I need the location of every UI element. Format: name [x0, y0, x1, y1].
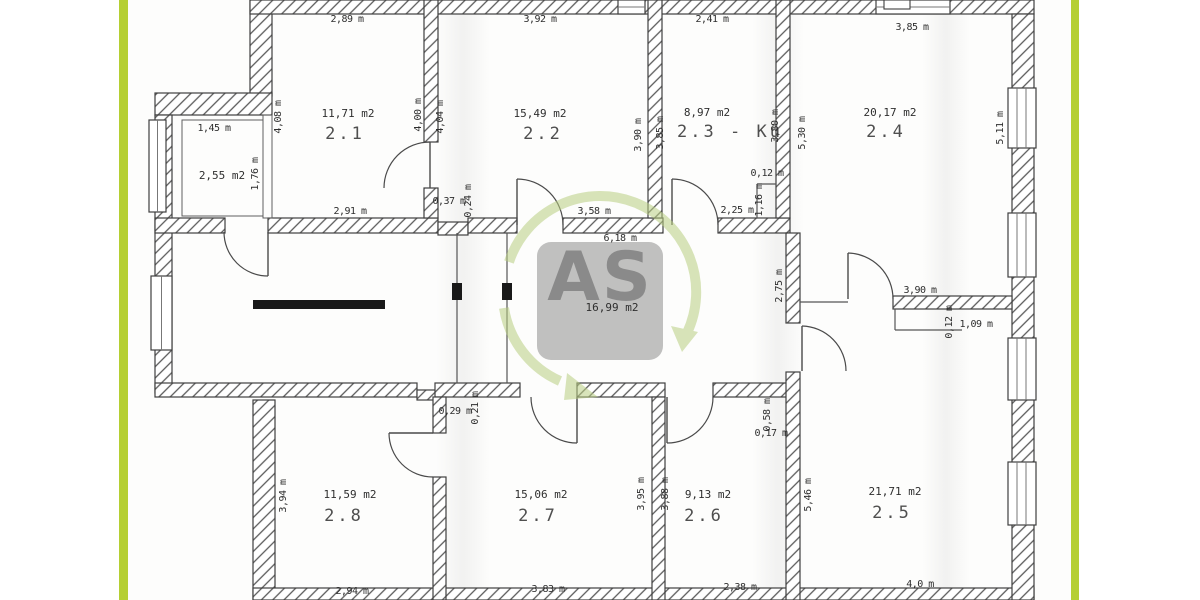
- dimension-label: 3,80 m: [770, 109, 781, 143]
- dimension-label: 3,85 m: [895, 22, 929, 33]
- window: [1008, 88, 1036, 148]
- room-area-label-room-2-2: 15,49 m2: [514, 107, 567, 120]
- dimension-label: 2,89 m: [330, 14, 364, 25]
- room-number-label-room-2-3: 2.3 - Kü: [677, 122, 783, 142]
- wall-segment: [155, 218, 225, 233]
- wall-segment: [253, 400, 275, 600]
- wall-segment: [563, 218, 663, 233]
- room-number-label-room-2-2: 2.2: [523, 124, 563, 144]
- dimension-label: 0,21 m: [470, 391, 481, 425]
- wall-segment: [718, 218, 790, 233]
- dimension-label: 0,37 m: [432, 196, 466, 207]
- dimension-label: 1,09 m: [959, 319, 993, 330]
- dimension-label: 4,08 m: [273, 100, 284, 134]
- wall-segment: [155, 383, 417, 397]
- room-area-label-room-2-6: 9,13 m2: [685, 488, 731, 501]
- chimney-stub: [884, 0, 910, 9]
- dimension-label: 1,16 m: [754, 183, 765, 217]
- room-area-label-room-2-4: 20,17 m2: [864, 106, 917, 119]
- wall-segment: [433, 477, 446, 600]
- dimension-label: 6,18 m: [603, 233, 637, 244]
- scanned-floor-plan-page: AS 2,55 m211,71 m22.115,49 m22.28,97 m22…: [0, 0, 1200, 600]
- room-area-label-room-2-8: 11,59 m2: [324, 488, 377, 501]
- dimension-label: 2,41 m: [695, 14, 729, 25]
- solid-wall-bar: [502, 283, 512, 300]
- room-area-label-room-2-5: 21,71 m2: [869, 485, 922, 498]
- wall-segment: [468, 218, 517, 233]
- dimension-label: 1,76 m: [250, 157, 261, 191]
- solid-wall-bar: [253, 300, 385, 309]
- dimension-label: 2,25 m: [720, 205, 754, 216]
- wall-segment: [786, 233, 800, 323]
- dimension-label: 3,90 m: [903, 285, 937, 296]
- dimension-label: 2,94 m: [335, 586, 369, 597]
- room-number-label-room-2-6: 2.6: [684, 506, 724, 526]
- dimension-label: 5,30 m: [797, 116, 808, 150]
- room-area-label-storage: 2,55 m2: [199, 169, 245, 182]
- room-number-label-room-2-7: 2.7: [518, 506, 558, 526]
- dimension-label: 1,45 m: [197, 123, 231, 134]
- dimension-label: 3,95 m: [636, 477, 647, 511]
- wall-segment: [268, 218, 438, 233]
- dimension-label: 3,90 m: [633, 118, 644, 152]
- room-area-label-room-2-1: 11,71 m2: [322, 107, 375, 120]
- room-number-label-room-2-1: 2.1: [325, 124, 365, 144]
- dimension-label: 0,12 m: [750, 168, 784, 179]
- dimension-label: 3,92 m: [523, 14, 557, 25]
- dimension-label: 3,88 m: [660, 477, 671, 511]
- dimension-label: 4,00 m: [413, 98, 424, 132]
- window: [1008, 338, 1036, 400]
- dimension-label: 4,04 m: [435, 100, 446, 134]
- room-number-label-room-2-5: 2.5: [872, 503, 912, 523]
- dimension-label: 0,12 m: [944, 305, 955, 339]
- wall-segment: [648, 0, 662, 218]
- dimension-label: 5,46 m: [803, 478, 814, 512]
- dimension-label: 5,11 m: [995, 111, 1006, 145]
- dimension-label: 3,58 m: [577, 206, 611, 217]
- floor-plan: AS 2,55 m211,71 m22.115,49 m22.28,97 m22…: [0, 0, 1200, 600]
- dimension-label: 3,94 m: [278, 479, 289, 513]
- left-accent-stripe: [119, 0, 128, 600]
- dimension-label: 0,29 m: [438, 406, 472, 417]
- dimension-label: 3,85 m: [655, 116, 666, 150]
- wall-segment: [438, 222, 468, 235]
- room-number-label-room-2-8: 2.8: [324, 506, 364, 526]
- window: [1008, 213, 1036, 277]
- dimension-label: 0,58 m: [762, 398, 773, 432]
- dimension-label: 2,38 m: [723, 582, 757, 593]
- wall-segment: [786, 372, 800, 600]
- room-area-label-corridor: 16,99 m2: [586, 301, 639, 314]
- wall-segment: [776, 0, 790, 218]
- dimension-label: 2,75 m: [774, 269, 785, 303]
- right-accent-stripe: [1071, 0, 1079, 600]
- dimension-label: 0,24 m: [463, 184, 474, 218]
- window: [1008, 462, 1036, 525]
- solid-wall-bar: [452, 283, 462, 300]
- dimension-label: 3,83 m: [531, 584, 565, 595]
- dimension-label: 2,91 m: [333, 206, 367, 217]
- wall-segment: [713, 383, 790, 397]
- dimension-label: 4,0 m: [906, 579, 934, 590]
- wall-segment: [155, 93, 272, 115]
- room-number-label-room-2-4: 2.4: [866, 122, 906, 142]
- room-area-label-room-2-3: 8,97 m2: [684, 106, 730, 119]
- room-area-label-room-2-7: 15,06 m2: [515, 488, 568, 501]
